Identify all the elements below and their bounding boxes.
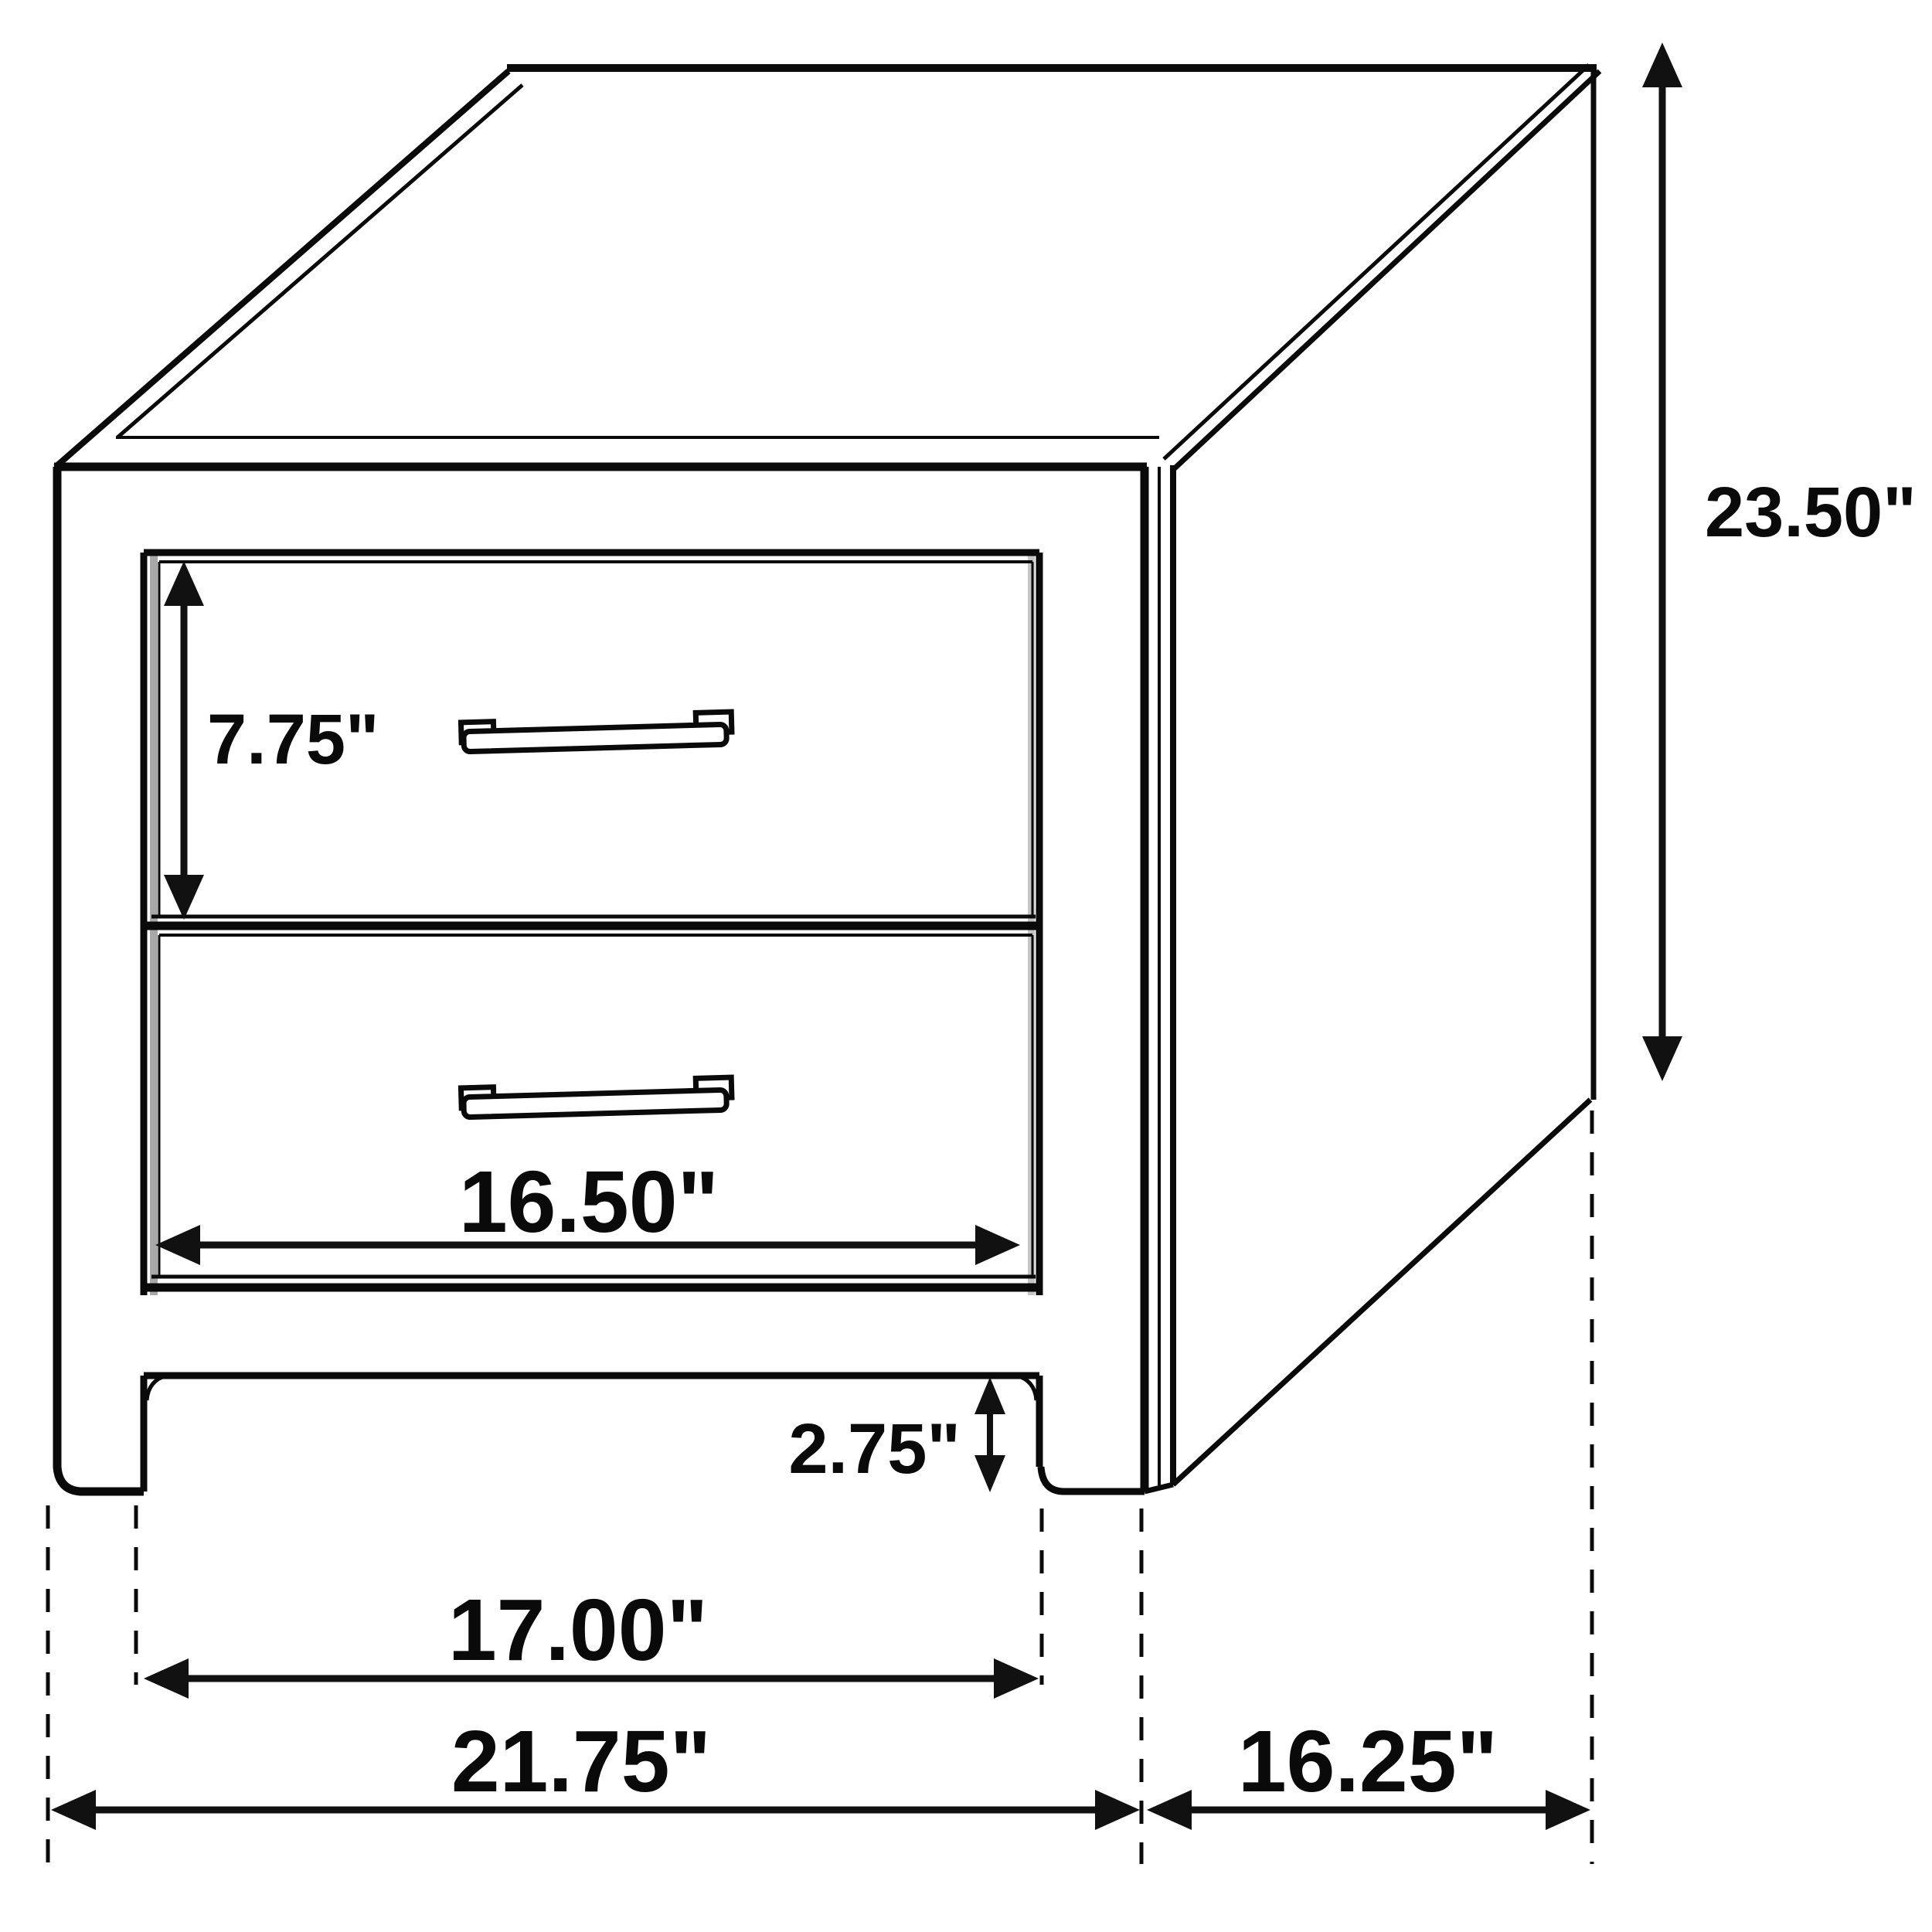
top-face bbox=[54, 65, 1600, 468]
front-frame bbox=[57, 467, 1145, 1492]
dim-label-drawer-height: 7.75" bbox=[207, 700, 379, 779]
dim-label-drawer-width: 16.50" bbox=[459, 1153, 719, 1250]
dim-label-foot-height: 2.75" bbox=[788, 1410, 961, 1488]
dim-arrow-overall-height bbox=[1642, 43, 1682, 1081]
dim-label-overall-height: 23.50" bbox=[1705, 473, 1917, 552]
dim-arrow-foot-height bbox=[975, 1377, 1005, 1492]
side-panel bbox=[1145, 70, 1594, 1492]
dim-label-inner-width: 17.00" bbox=[448, 1581, 708, 1679]
dim-label-depth: 16.25" bbox=[1238, 1713, 1498, 1810]
nightstand-diagram-svg: 7.75" 16.50" 2.75" 17.00" 21.75" 16.25" … bbox=[0, 0, 1932, 1932]
top-drawer-handle bbox=[461, 712, 732, 752]
dim-label-overall-width: 21.75" bbox=[451, 1713, 711, 1810]
dim-arrow-drawer-height bbox=[164, 561, 204, 920]
dimension-diagram: 7.75" 16.50" 2.75" 17.00" 21.75" 16.25" … bbox=[0, 0, 1932, 1932]
bottom-drawer-handle bbox=[461, 1077, 732, 1117]
